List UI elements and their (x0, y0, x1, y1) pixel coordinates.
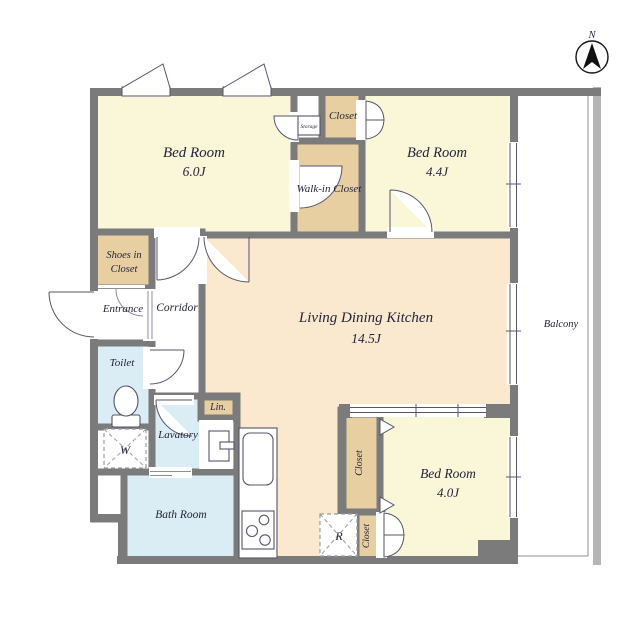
shoes-closet-label-2: Closet (111, 264, 139, 275)
balcony-outer-rail (593, 87, 601, 565)
floor-plan-svg: N Bed Room 6.0J Bed Room 4.4J Living Din… (0, 0, 640, 640)
lavatory-label: Lavatory (157, 429, 198, 441)
bedroom-6-size: 6.0J (183, 164, 207, 179)
compass-north-label: N (587, 30, 596, 41)
bedroom-6-label: Bed Room (163, 145, 225, 161)
window-top-2-flap (223, 64, 271, 88)
bedroom-40-label: Bed Room (420, 466, 476, 481)
ldk-label: Living Dining Kitchen (298, 310, 433, 326)
closet-tall-label: Closet (354, 450, 365, 476)
bedroom-44-size: 4.4J (426, 164, 449, 179)
wall-bottom (117, 556, 488, 564)
toilet-tank (112, 415, 140, 427)
entrance-label: Entrance (102, 303, 143, 315)
window-top-1-flap (122, 64, 170, 88)
utility-nook (94, 472, 124, 519)
stove-burner-1 (247, 526, 258, 537)
washer-label: W (120, 443, 131, 457)
stove-burner-2 (259, 515, 269, 525)
closet-top-label: Closet (329, 110, 358, 122)
balcony-label: Balcony (544, 319, 579, 330)
lavatory-sink-handle (220, 442, 234, 449)
corridor-label: Corridor (156, 302, 198, 314)
kitchen-sink (243, 433, 273, 485)
storage-label: Storage (300, 124, 318, 130)
linen-label: Lin. (209, 402, 226, 413)
shoes-closet-label-1: Shoes in (106, 250, 141, 261)
ldk-size: 14.5J (351, 331, 382, 346)
wall-partition-stub-right (484, 404, 512, 418)
door-entrance (49, 292, 94, 337)
floor-plan: N Bed Room 6.0J Bed Room 4.4J Living Din… (0, 0, 640, 640)
walk-in-closet-label: Walk-in Closet (297, 183, 363, 195)
refrigerator-label: R (334, 529, 343, 543)
closet-small-label: Closet (362, 524, 372, 549)
stove-burner-3 (260, 535, 270, 545)
toilet-label: Toilet (110, 357, 136, 369)
compass: N (576, 30, 608, 73)
bedroom-40-size: 4.0J (437, 485, 460, 500)
bedroom-44-label: Bed Room (407, 145, 467, 161)
bathroom-label: Bath Room (155, 509, 206, 521)
toilet-bowl (114, 386, 138, 416)
